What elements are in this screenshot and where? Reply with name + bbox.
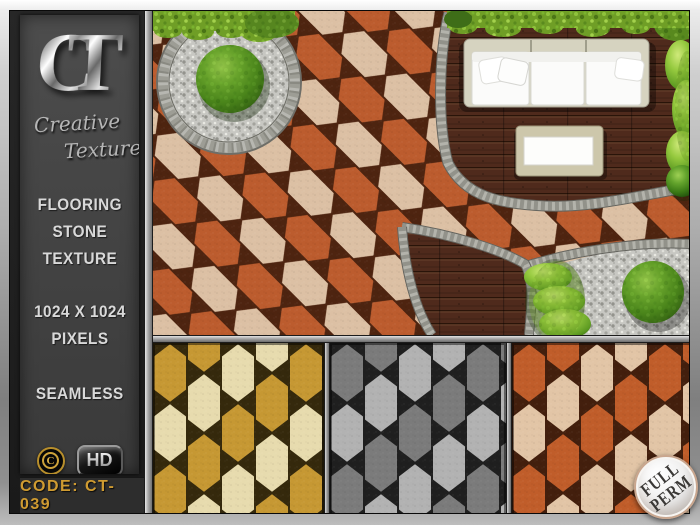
- sofa-pillow: [614, 57, 645, 82]
- hd-badge-icon: HD: [77, 445, 123, 474]
- full-perm-badge-text: FULL PERM: [637, 459, 695, 515]
- brand-name-line1: Creative: [33, 109, 120, 137]
- product-title: FLOORING STONE TEXTURE: [37, 191, 121, 272]
- swatch-gold: [153, 343, 324, 514]
- product-code: CODE: CT-039: [20, 477, 144, 513]
- poster-content: C T Creative Textures FLOORING STONE TEX…: [9, 10, 690, 514]
- swatch-gray: [330, 343, 506, 514]
- garden-render: [153, 11, 690, 335]
- brand-logo: C T: [34, 23, 125, 103]
- license-icons: C HD: [37, 445, 123, 474]
- texture-size-value: 1024 X 1024: [34, 298, 126, 325]
- info-sidebar: C T Creative Textures FLOORING STONE TEX…: [10, 11, 144, 513]
- texture-product-poster: C T Creative Textures FLOORING STONE TEX…: [0, 0, 700, 525]
- copyright-letter: C: [42, 452, 59, 469]
- logo-letter-t: T: [65, 23, 125, 103]
- full-perm-badge: FULL PERM: [634, 455, 698, 519]
- scene-swatch-divider: [153, 335, 690, 343]
- texture-size: 1024 X 1024 PIXELS: [34, 298, 126, 352]
- coffee-table-top-view: [514, 126, 607, 180]
- seamless-label: SEAMLESS: [36, 380, 124, 407]
- product-title-line: FLOORING: [37, 191, 121, 218]
- texture-size-unit: PIXELS: [34, 325, 126, 352]
- garden-scene-svg: [153, 11, 690, 335]
- hd-label: HD: [87, 450, 113, 471]
- copyright-icon: C: [37, 447, 65, 475]
- sofa-pillow: [497, 57, 529, 86]
- sidebar-divider: [144, 11, 153, 513]
- sidebar-panel: C T Creative Textures FLOORING STONE TEX…: [20, 15, 139, 474]
- texture-swatches: [153, 343, 690, 514]
- sofa-top-view: [459, 39, 656, 112]
- preview-area: [153, 11, 690, 513]
- brand-name-line2: Textures: [63, 135, 139, 164]
- product-title-line: TEXTURE: [37, 245, 121, 272]
- product-title-line: STONE: [37, 218, 121, 245]
